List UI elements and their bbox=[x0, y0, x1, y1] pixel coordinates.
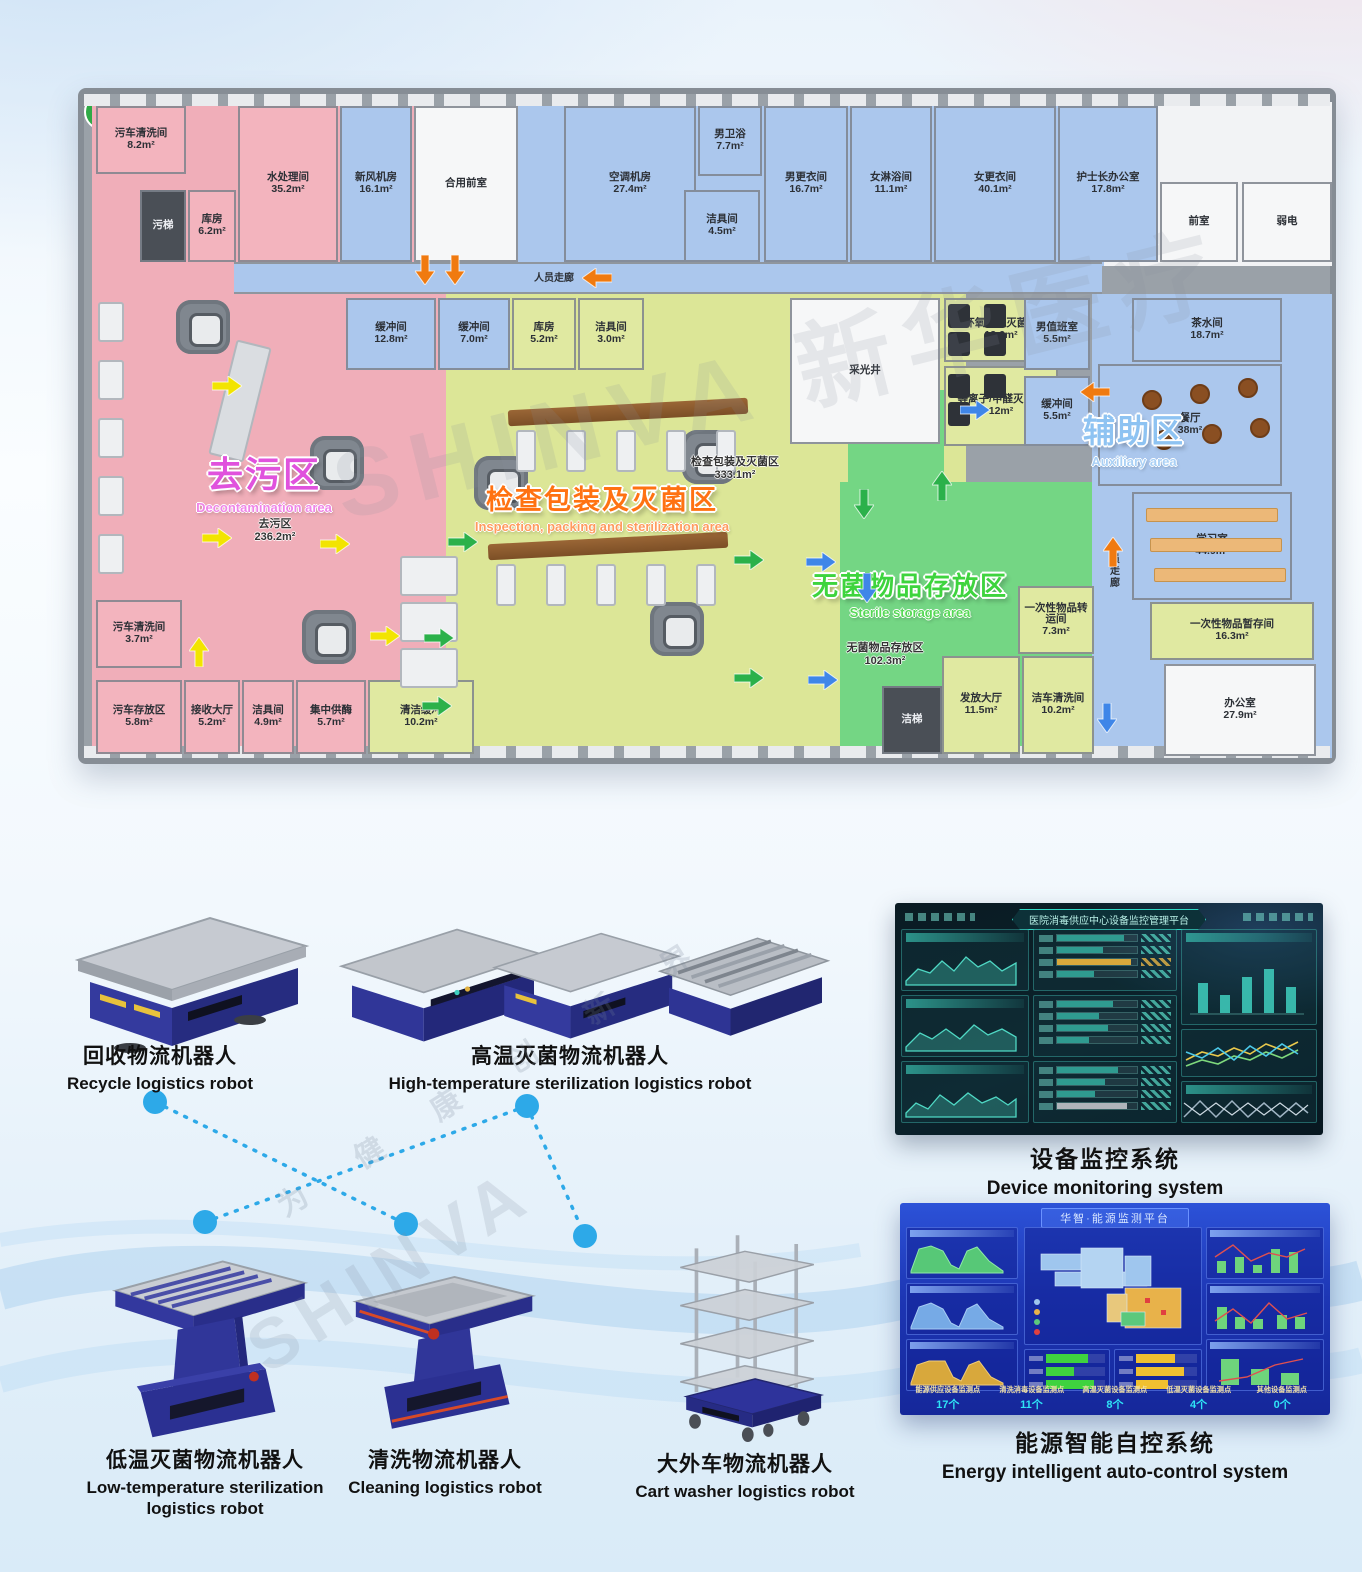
zone-floor-text: 检查包装及灭菌区 bbox=[650, 456, 820, 469]
workstation bbox=[566, 430, 586, 472]
room-name: 人员走廊 bbox=[534, 273, 574, 284]
flow-arrow bbox=[734, 550, 764, 570]
flow-arrow bbox=[960, 400, 990, 420]
room-nan_geng_yi: 男更衣间16.7m² bbox=[764, 106, 848, 262]
sterilizer-rack bbox=[984, 304, 1006, 328]
wall-equipment bbox=[98, 534, 124, 574]
room-area: 3.0m² bbox=[597, 334, 624, 346]
wall-equipment bbox=[98, 360, 124, 400]
monitor-point: 低温灭菌设备监测点4个 bbox=[1157, 1384, 1241, 1412]
room-area: 4.9m² bbox=[254, 717, 281, 729]
room-area: 6.2m² bbox=[198, 226, 225, 238]
flow-arrow bbox=[734, 668, 764, 688]
wall-equipment bbox=[98, 418, 124, 458]
workstation bbox=[646, 564, 666, 606]
room-huan_chong_128: 缓冲间12.8m² bbox=[346, 298, 436, 370]
washer-equipment bbox=[400, 648, 458, 688]
washer-equipment bbox=[400, 556, 458, 596]
room-fa_fang: 发放大厅11.5m² bbox=[942, 656, 1020, 754]
room-area: 16.3m² bbox=[1215, 631, 1248, 643]
room-name: 合用前室 bbox=[445, 178, 487, 190]
room-jie_ti: 洁梯 bbox=[882, 686, 942, 754]
flow-arrow bbox=[1097, 703, 1117, 733]
room-name: 一次性物品转运间 bbox=[1020, 603, 1092, 626]
dining-table bbox=[1238, 378, 1258, 398]
zone-floor-label-inspection: 检查包装及灭菌区333.1m² bbox=[650, 456, 820, 481]
monitor-point-label: 能源供应设备监测点 bbox=[910, 1385, 985, 1395]
room-area: 12.8m² bbox=[374, 334, 407, 346]
wall-equipment bbox=[98, 302, 124, 342]
robot-dock bbox=[176, 300, 230, 354]
flow-arrow bbox=[189, 637, 209, 667]
recycle-robot-image bbox=[55, 898, 325, 1063]
room-qing_jie: 清洁缓冲10.2m² bbox=[368, 680, 474, 754]
sterilizer-rack bbox=[984, 374, 1006, 398]
room-area: 5.5m² bbox=[1043, 334, 1070, 346]
monitor-point-label: 清洗消毒设备监测点 bbox=[994, 1385, 1069, 1395]
room-ji_zhong: 集中供酶5.7m² bbox=[296, 680, 366, 754]
flow-arrow bbox=[202, 528, 232, 548]
room-nan_wei_yu: 男卫浴7.7m² bbox=[698, 106, 762, 176]
robot-dock bbox=[302, 610, 356, 664]
flow-arrow bbox=[806, 552, 836, 572]
flow-arrow bbox=[370, 626, 400, 646]
flow-arrow bbox=[808, 670, 838, 690]
device-screen-header: 医院消毒供应中心设备监控管理平台 bbox=[901, 909, 1317, 929]
flow-arrow bbox=[445, 255, 465, 285]
room-area: 5.2m² bbox=[530, 334, 557, 346]
workstation bbox=[616, 430, 636, 472]
zone-floor-text: 无菌物品存放区 bbox=[800, 642, 970, 655]
low-temp-robot-label: 低温灭菌物流机器人 Low-temperature sterilization … bbox=[65, 1444, 345, 1520]
dining-table bbox=[1142, 390, 1162, 410]
flow-arrow bbox=[582, 268, 612, 288]
monitor-point: 高温灭菌设备监测点8个 bbox=[1073, 1384, 1157, 1412]
room-name: 前室 bbox=[1189, 216, 1210, 228]
flow-arrow bbox=[1080, 382, 1110, 402]
room-area: 7.3m² bbox=[1042, 626, 1069, 638]
room-qian_shi: 前室 bbox=[1160, 182, 1238, 262]
room-area: 5.8m² bbox=[125, 717, 152, 729]
recycle-robot-label: 回收物流机器人 Recycle logistics robot bbox=[30, 1040, 290, 1094]
cleaning-robot-image bbox=[330, 1258, 560, 1448]
room-area: 18.7m² bbox=[1190, 330, 1223, 342]
room-nv_geng_yi: 女更衣间40.1m² bbox=[934, 106, 1056, 262]
room-area: 27.9m² bbox=[1223, 710, 1256, 722]
monitor-point-label: 其他设备监测点 bbox=[1245, 1385, 1320, 1395]
cart-washer-robot-label: 大外车物流机器人 Cart washer logistics robot bbox=[600, 1448, 890, 1502]
room-area: 7.0m² bbox=[460, 334, 487, 346]
room-jie_che_qx: 洁车清洗间10.2m² bbox=[1022, 656, 1094, 754]
monitor-point: 其他设备监测点0个 bbox=[1240, 1384, 1324, 1412]
room-name: 采光井 bbox=[849, 365, 881, 377]
energy-screen-title: 华智·能源监测平台 bbox=[1041, 1208, 1189, 1228]
room-jie_ju_49: 洁具间4.9m² bbox=[242, 680, 294, 754]
room-area: 10.2m² bbox=[1041, 705, 1074, 717]
flow-arrow bbox=[448, 532, 478, 552]
room-area: 7.7m² bbox=[716, 141, 743, 153]
cart-washer-robot-image bbox=[615, 1222, 885, 1447]
room-hu_shi_zhang: 护士长办公室17.8m² bbox=[1058, 106, 1158, 262]
workstation bbox=[516, 430, 536, 472]
monitor-point: 清洗消毒设备监测点11个 bbox=[990, 1384, 1074, 1412]
monitor-point-label: 高温灭菌设备监测点 bbox=[1077, 1385, 1152, 1395]
floor-plan: 污车清洗间8.2m²污梯库房6.2m²水处理间35.2m²新风机房16.1m²合… bbox=[78, 88, 1336, 764]
room-area: 4.5m² bbox=[708, 226, 735, 238]
sterilizer-rack bbox=[948, 304, 970, 328]
zone-floor-label-sterile: 无菌物品存放区102.3m² bbox=[800, 642, 970, 667]
flow-arrow bbox=[857, 573, 877, 603]
room-nv_lin_yu: 女淋浴间11.1m² bbox=[850, 106, 932, 262]
poster: SHINVA 新华医疗 SHINVA 为 健 康 创 新 界 污车清洗间8.2m… bbox=[0, 0, 1362, 1572]
room-corridor_h: 人员走廊 bbox=[234, 262, 1102, 294]
room-wu_che_cun: 污车存放区5.8m² bbox=[96, 680, 182, 754]
room-area: 16.1m² bbox=[359, 184, 392, 196]
device-monitoring-screen: 医院消毒供应中心设备监控管理平台 bbox=[895, 903, 1323, 1135]
sterilizer-rack bbox=[948, 332, 970, 356]
workstation bbox=[546, 564, 566, 606]
room-shui_chu_li: 水处理间35.2m² bbox=[238, 106, 338, 262]
device-screen-title: 医院消毒供应中心设备监控管理平台 bbox=[1012, 909, 1206, 930]
room-area: 12m² bbox=[989, 406, 1014, 418]
high-temp-robot-image-3 bbox=[645, 915, 840, 1055]
room-he_yong_qian_shi: 合用前室 bbox=[414, 106, 518, 262]
room-yi_ci_zancun: 一次性物品暂存间16.3m² bbox=[1150, 602, 1314, 660]
room-jie_ju_30: 洁具间3.0m² bbox=[578, 298, 644, 370]
room-ku_fang_62: 库房6.2m² bbox=[188, 190, 236, 262]
monitor-point: 能源供应设备监测点17个 bbox=[906, 1384, 990, 1412]
room-area: 35.2m² bbox=[271, 184, 304, 196]
room-huan_chong_70: 缓冲间7.0m² bbox=[438, 298, 510, 370]
room-area: 11.1m² bbox=[875, 184, 908, 196]
low-temp-robot-image bbox=[85, 1240, 335, 1450]
flow-arrow bbox=[320, 534, 350, 554]
dining-table bbox=[1250, 418, 1270, 438]
workstation bbox=[596, 564, 616, 606]
monitor-point-count: 17个 bbox=[906, 1396, 990, 1412]
energy-monitor-points: 能源供应设备监测点17个清洗消毒设备监测点11个高温灭菌设备监测点8个低温灭菌设… bbox=[906, 1384, 1324, 1412]
room-jie_shou: 接收大厅5.2m² bbox=[184, 680, 240, 754]
flow-arrow bbox=[854, 489, 874, 519]
flow-arrow bbox=[1103, 537, 1123, 567]
room-nan_zhi_ban: 男值班室5.5m² bbox=[1024, 298, 1090, 370]
room-area: 38m² bbox=[1178, 425, 1203, 437]
dining-table bbox=[1190, 384, 1210, 404]
room-area: 10.2m² bbox=[404, 717, 437, 729]
flow-arrow bbox=[422, 696, 452, 716]
robot-dock bbox=[650, 602, 704, 656]
study-table bbox=[1146, 508, 1278, 522]
zone-floor-text: 102.3m² bbox=[800, 655, 970, 668]
energy-screen-label: 能源智能自控系统 Energy intelligent auto-control… bbox=[885, 1424, 1345, 1484]
room-kong_tiao_ji_fang: 空调机房27.4m² bbox=[564, 106, 696, 262]
room-yi_ci_zhuanyun: 一次性物品转运间7.3m² bbox=[1018, 586, 1094, 654]
room-ruo_dian: 弱电 bbox=[1242, 182, 1332, 262]
study-table bbox=[1150, 538, 1282, 552]
room-area: 5.2m² bbox=[198, 717, 225, 729]
room-area: 27.4m² bbox=[613, 184, 646, 196]
sterilizer-rack bbox=[948, 374, 970, 398]
room-cha_shui: 茶水间18.7m² bbox=[1132, 298, 1282, 362]
robot-dock bbox=[310, 436, 364, 490]
room-ku_fang_52: 库房5.2m² bbox=[512, 298, 576, 370]
dining-table bbox=[1154, 430, 1174, 450]
energy-monitoring-screen: 华智·能源监测平台 bbox=[900, 1203, 1330, 1415]
workstation bbox=[496, 564, 516, 606]
room-area: 5.5m² bbox=[1043, 411, 1070, 423]
flow-arrow bbox=[212, 376, 242, 396]
room-name: 弱电 bbox=[1277, 216, 1298, 228]
room-area: 17.8m² bbox=[1091, 184, 1124, 196]
room-area: 3.7m² bbox=[125, 634, 152, 646]
room-area: 40.1m² bbox=[978, 184, 1011, 196]
workstation bbox=[696, 564, 716, 606]
flow-arrow bbox=[932, 471, 952, 501]
cleaning-robot-label: 清洗物流机器人 Cleaning logistics robot bbox=[310, 1444, 580, 1498]
wall-equipment bbox=[98, 476, 124, 516]
high-temp-robot-label: 高温灭菌物流机器人 High-temperature sterilization… bbox=[340, 1040, 800, 1094]
sterilizer-rack bbox=[984, 332, 1006, 356]
room-ban_gong: 办公室27.9m² bbox=[1164, 664, 1316, 756]
monitor-point-count: 8个 bbox=[1073, 1396, 1157, 1412]
monitor-point-count: 0个 bbox=[1240, 1396, 1324, 1412]
flow-arrow bbox=[415, 255, 435, 285]
study-table bbox=[1154, 568, 1286, 582]
room-area: 11.5m² bbox=[965, 705, 998, 717]
monitor-point-count: 4个 bbox=[1157, 1396, 1241, 1412]
room-wu_che_qx_top: 污车清洗间8.2m² bbox=[96, 106, 186, 174]
room-area: 5.7m² bbox=[317, 717, 344, 729]
room-cai_guang_jing: 采光井 bbox=[790, 298, 940, 444]
dining-table bbox=[1202, 424, 1222, 444]
monitor-point-label: 低温灭菌设备监测点 bbox=[1161, 1385, 1236, 1395]
top-wall bbox=[84, 94, 1330, 106]
room-wu_ti: 污梯 bbox=[140, 190, 186, 262]
room-name: 污梯 bbox=[153, 220, 174, 232]
room-wu_che_qx_2: 污车清洗间3.7m² bbox=[96, 600, 182, 668]
room-area: 8.2m² bbox=[127, 140, 154, 152]
room-jie_ju_45: 洁具间4.5m² bbox=[684, 190, 760, 262]
monitor-point-count: 11个 bbox=[990, 1396, 1074, 1412]
room-name: 洁梯 bbox=[902, 714, 923, 726]
room-area: 16.7m² bbox=[789, 184, 822, 196]
room-xin_feng_ji_fang: 新风机房16.1m² bbox=[340, 106, 412, 262]
flow-arrow bbox=[424, 628, 454, 648]
device-screen-label: 设备监控系统 Device monitoring system bbox=[875, 1140, 1335, 1200]
zone-floor-text: 333.1m² bbox=[650, 469, 820, 482]
